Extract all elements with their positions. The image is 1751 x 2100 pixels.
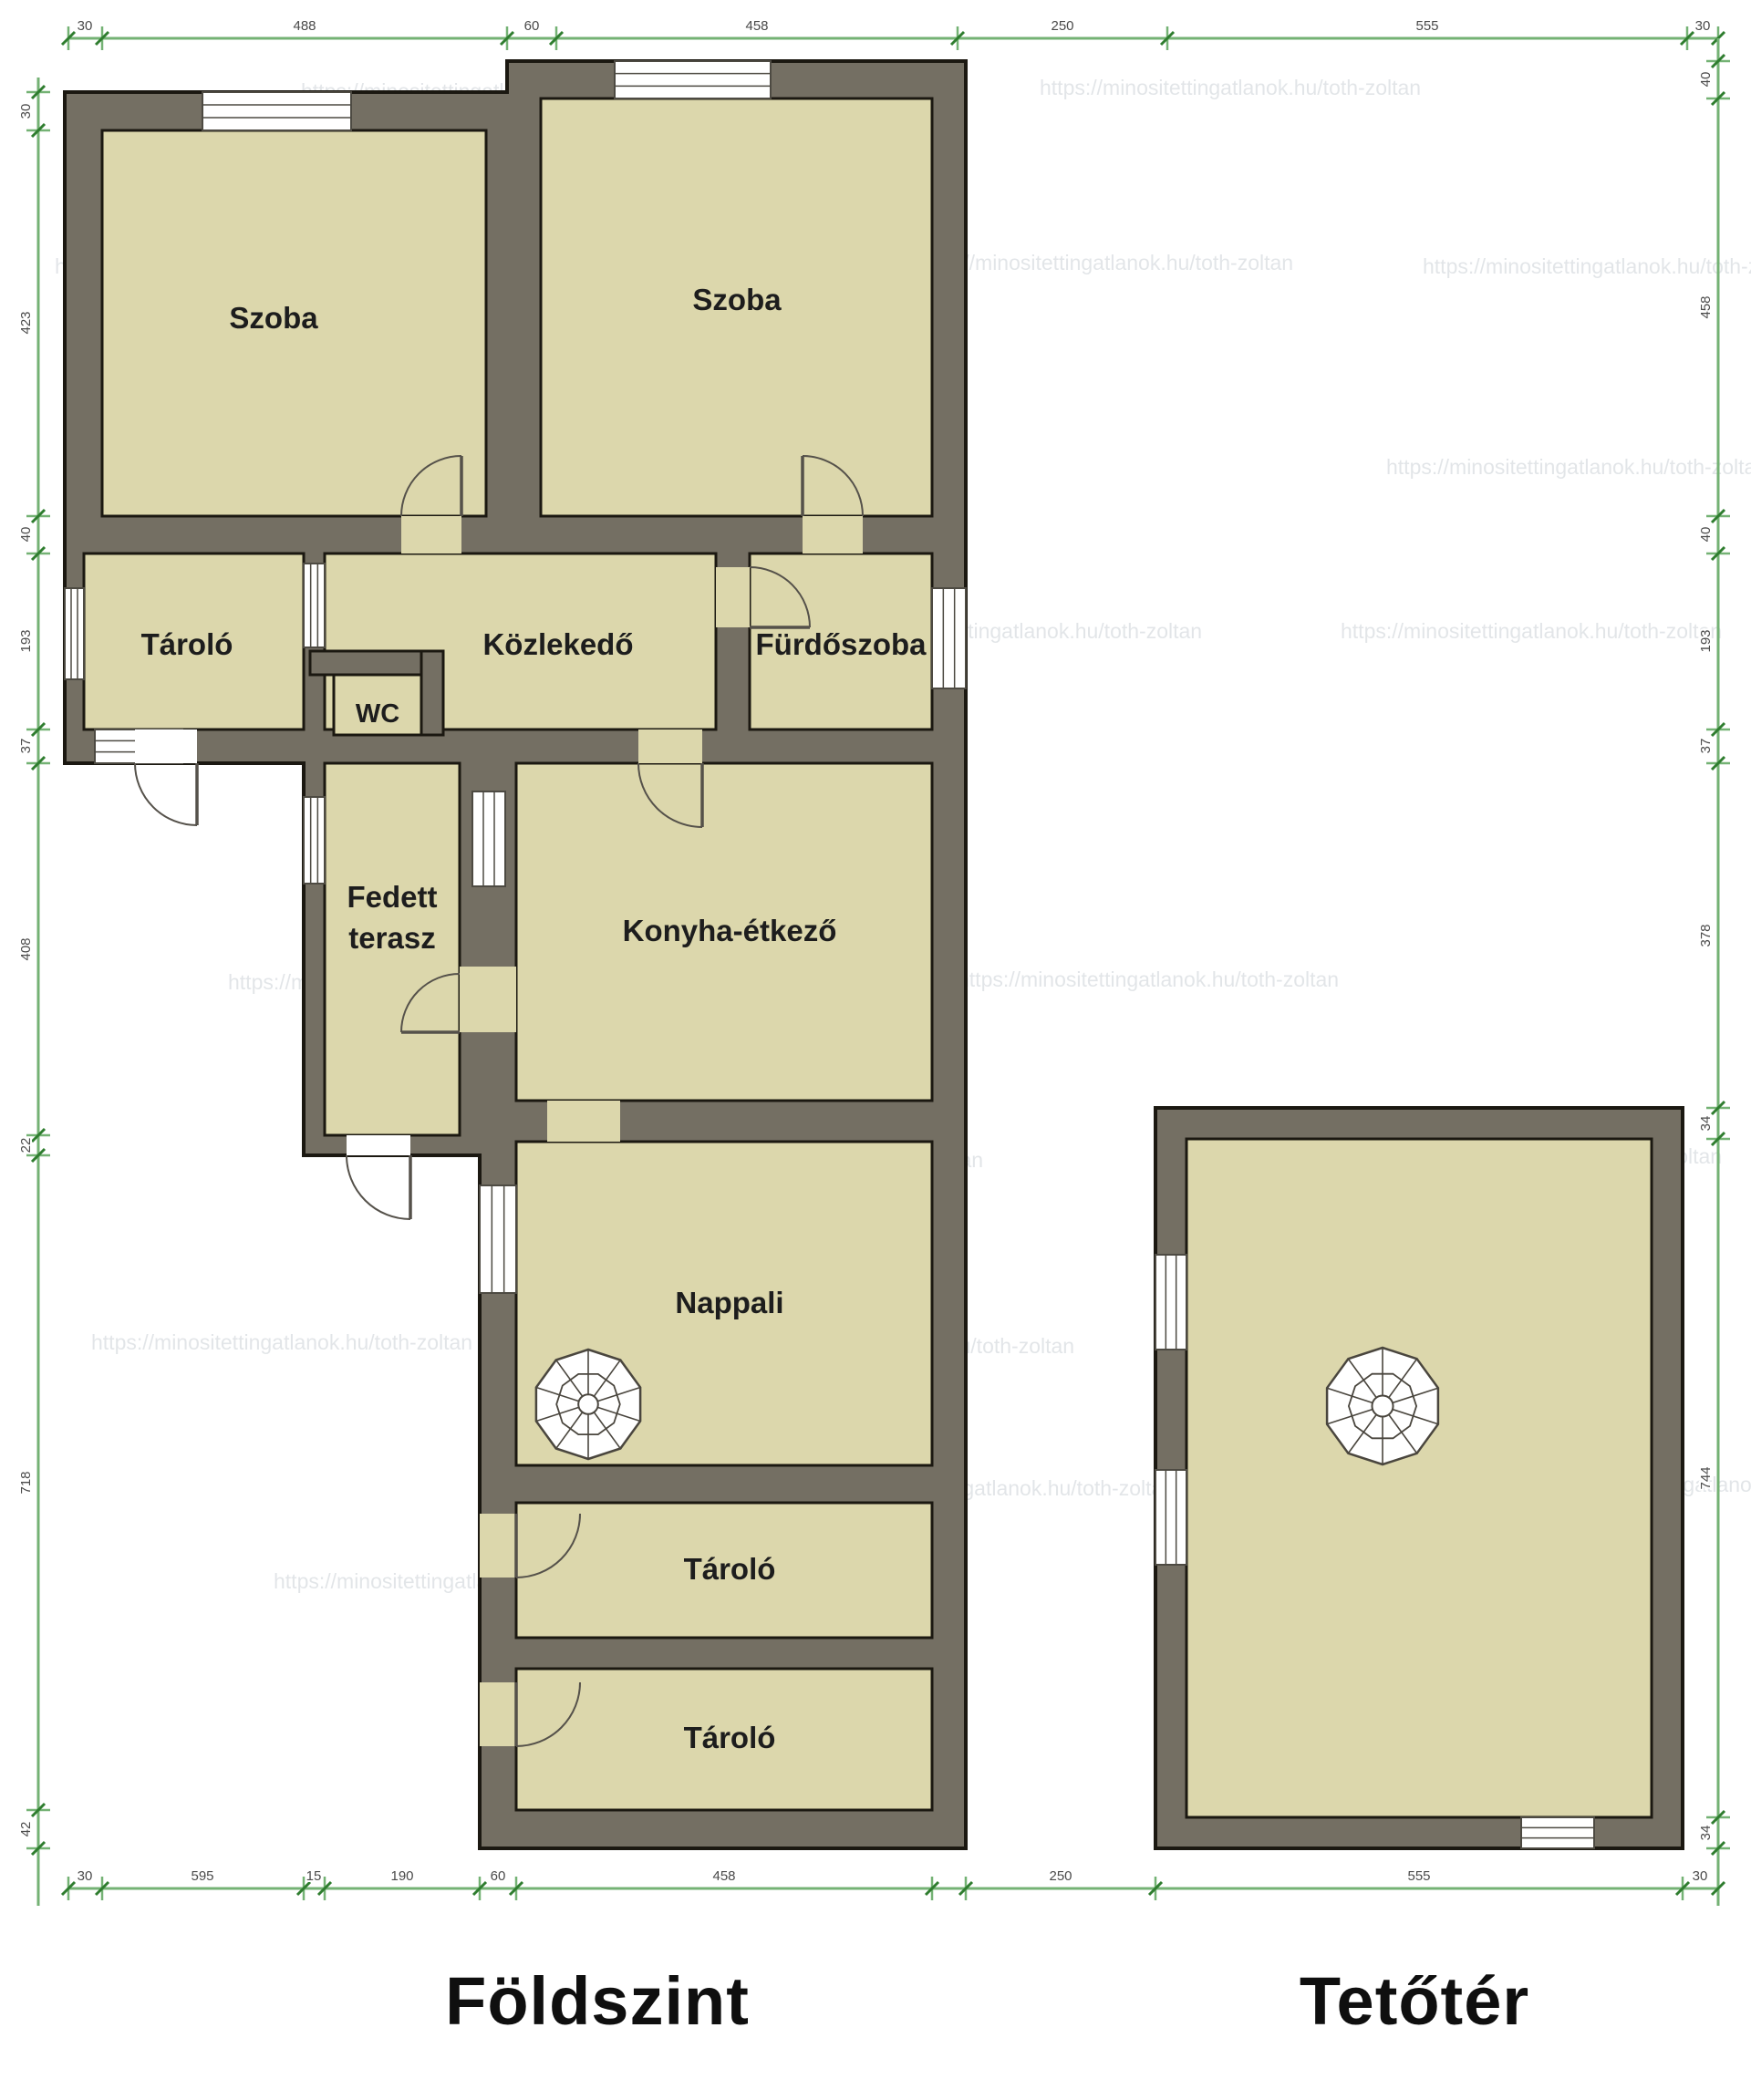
dim-label: 193	[1698, 629, 1714, 652]
door-terasz-exterior-gap	[347, 1135, 410, 1155]
attic-title: Tetőtér	[1300, 1962, 1529, 2040]
dim-label: 555	[1407, 1868, 1430, 1884]
dim-label: 595	[191, 1868, 213, 1884]
room-label-szoba-2: Szoba	[692, 283, 782, 316]
dim-label: 37	[1698, 739, 1714, 754]
dim-label: 40	[18, 527, 34, 543]
dim-label: 30	[1693, 1868, 1708, 1884]
watermark-text: https://minositettingatlanok.hu/toth-zol…	[1386, 455, 1751, 479]
dim-label: 250	[1049, 1868, 1072, 1884]
room-label-konyha-etkezo: Konyha-étkező	[623, 914, 837, 947]
window	[1155, 1255, 1186, 1350]
room-label-tarolo-3: Tároló	[684, 1721, 776, 1754]
room-label-fedett-terasz: Fedett	[347, 880, 438, 914]
dim-label: 378	[1698, 924, 1714, 947]
dim-label: 60	[491, 1868, 506, 1884]
dim-label: 193	[18, 629, 34, 652]
dim-label: 458	[712, 1868, 735, 1884]
watermark-text: https://minositettingatlanok.hu/toth-zol…	[912, 251, 1293, 274]
window	[615, 61, 771, 98]
opening-konyha-nappali-gap	[547, 1101, 620, 1142]
room-label-kozlekedo: Közlekedő	[482, 627, 633, 661]
door-szoba-1-gap	[401, 516, 461, 553]
watermark-text: https://minositettingatlanok.hu/toth-zol…	[1040, 76, 1421, 99]
dim-label: 34	[1698, 1826, 1714, 1841]
door-tarolo-3-gap	[480, 1682, 516, 1746]
dim-label: 40	[1698, 72, 1714, 88]
dim-label: 22	[18, 1138, 34, 1153]
window	[480, 1185, 516, 1293]
spiral-stair-ground-newel	[578, 1394, 598, 1414]
dim-label: 30	[1695, 18, 1711, 34]
spiral-stair-attic-newel	[1372, 1395, 1393, 1416]
dim-label: 190	[390, 1868, 413, 1884]
window	[1521, 1817, 1594, 1848]
room-label-nappali: Nappali	[675, 1286, 783, 1319]
watermark-text: https://minositettingatlanok.hu/toth-zol…	[1423, 254, 1751, 278]
dim-label: 488	[293, 18, 316, 34]
window	[1155, 1470, 1186, 1565]
room-label-fedett-terasz: terasz	[348, 921, 435, 955]
window	[304, 797, 325, 884]
room-label-szoba-1: Szoba	[229, 301, 318, 335]
room-label-tarolo-1: Tároló	[141, 627, 233, 661]
room-attic-room	[1186, 1139, 1652, 1817]
dim-label: 15	[306, 1868, 322, 1884]
ground-floor-title: Földszint	[445, 1962, 750, 2040]
window	[304, 564, 325, 647]
door-tarolo-1-exterior-arc	[135, 763, 197, 825]
dim-label: 458	[1698, 295, 1714, 318]
dim-label: 744	[1698, 1466, 1714, 1489]
dim-label: 37	[18, 739, 34, 754]
room-label-tarolo-2: Tároló	[684, 1552, 776, 1586]
door-szoba-2-gap	[803, 516, 863, 553]
door-tarolo-2-gap	[480, 1514, 516, 1578]
room-label-wc: WC	[356, 699, 399, 729]
dim-label: 40	[1698, 527, 1714, 543]
door-tarolo-1-exterior-gap	[135, 729, 197, 763]
door-kozlekedo-konyha-gap	[638, 729, 702, 763]
window	[472, 791, 505, 886]
window	[65, 588, 84, 679]
floor-plan-stage: https://minositettingatlanok.hu/toth-zol…	[0, 0, 1751, 2100]
dim-label: 458	[745, 18, 768, 34]
dim-label: 30	[18, 104, 34, 119]
floor-plan-drawing: https://minositettingatlanok.hu/toth-zol…	[0, 0, 1751, 2100]
window	[932, 588, 966, 688]
dim-label: 423	[18, 311, 34, 334]
dim-label: 42	[18, 1822, 34, 1837]
dim-label: 718	[18, 1471, 34, 1494]
window	[202, 92, 351, 130]
door-furdoszoba-gap	[716, 567, 750, 627]
dim-label: 30	[78, 1868, 93, 1884]
dim-label: 60	[524, 18, 540, 34]
dim-label: 34	[1698, 1116, 1714, 1132]
door-terasz-konyha-gap	[460, 967, 516, 1032]
door-terasz-exterior-arc	[347, 1155, 410, 1219]
dim-label: 30	[78, 18, 93, 34]
dim-label: 250	[1051, 18, 1073, 34]
dim-label: 555	[1415, 18, 1438, 34]
watermark-text: https://minositettingatlanok.hu/toth-zol…	[91, 1330, 472, 1354]
watermark-text: https://minositettingatlanok.hu/toth-zol…	[958, 967, 1339, 991]
watermark-text: https://minositettingatlanok.hu/toth-zol…	[1341, 619, 1722, 643]
room-label-furdoszoba: Fürdőszoba	[756, 627, 927, 661]
dim-label: 408	[18, 937, 34, 960]
inner-wall	[421, 651, 443, 735]
